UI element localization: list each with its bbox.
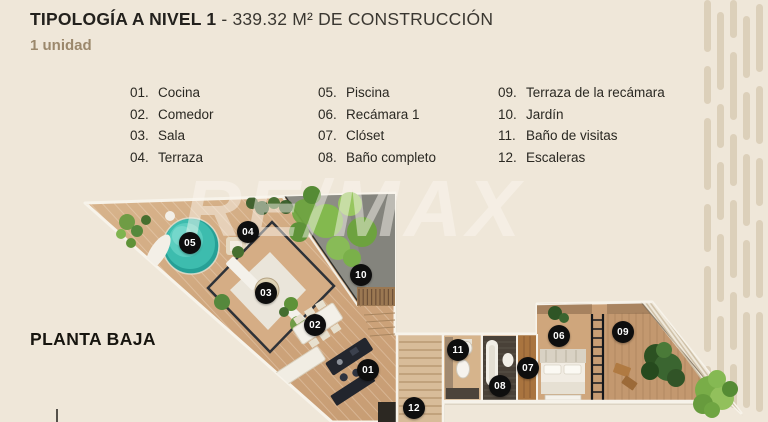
- plan-marker-11-bano-visitas: 11: [447, 339, 469, 361]
- plan-marker-04-terraza: 04: [237, 221, 259, 243]
- plan-marker-12-escaleras: 12: [403, 397, 425, 419]
- legend-item-bano-completo: 08.Baño completo: [318, 151, 436, 166]
- plan-marker-01-cocina: 01: [357, 359, 379, 381]
- plan-level-label: PLANTA BAJA: [30, 329, 156, 350]
- legend-item-cocina: 01.Cocina: [130, 86, 214, 101]
- legend-column-1: 01.Cocina 02.Comedor 03.Sala 04.Terraza: [130, 86, 214, 165]
- construction-area: 339.32 M² DE CONSTRUCCIÓN: [232, 9, 493, 29]
- plan-marker-08-bano: 08: [489, 375, 511, 397]
- legend-item-escaleras: 12.Escaleras: [498, 151, 665, 166]
- plan-marker-02-comedor: 02: [304, 314, 326, 336]
- plan-marker-05-piscina: 05: [179, 232, 201, 254]
- floor-plan-rendering: [0, 0, 768, 422]
- side-table: [165, 211, 175, 221]
- plan-marker-07-closet: 07: [517, 357, 539, 379]
- plan-marker-06-recamara: 06: [548, 325, 570, 347]
- legend-item-comedor: 02.Comedor: [130, 108, 214, 123]
- bedroom: [537, 303, 592, 402]
- page-title: TIPOLOGÍA A NIVEL 1 - 339.32 M² DE CONST…: [30, 9, 493, 30]
- presentation-slide: TIPOLOGÍA A NIVEL 1 - 339.32 M² DE CONST…: [0, 0, 768, 422]
- legend-item-terraza-recamara: 09.Terraza de la recámara: [498, 86, 665, 101]
- plan-marker-10-jardin: 10: [350, 264, 372, 286]
- legend-item-jardin: 10.Jardín: [498, 108, 665, 123]
- bottom-tick-mark: [56, 409, 58, 422]
- legend-item-closet: 07.Clóset: [318, 129, 436, 144]
- unit-count-label: 1 unidad: [30, 37, 92, 54]
- plan-marker-03-sala: 03: [255, 282, 277, 304]
- legend-column-2: 05.Piscina 06.Recámara 1 07.Clóset 08.Ba…: [318, 86, 436, 165]
- plan-marker-09-terraza-recamara: 09: [612, 321, 634, 343]
- legend-item-terraza: 04.Terraza: [130, 151, 214, 166]
- bed: [540, 349, 586, 400]
- legend-item-recamara: 06.Recámara 1: [318, 108, 436, 123]
- legend-item-bano-visitas: 11.Baño de visitas: [498, 129, 665, 144]
- typology-name: TIPOLOGÍA A NIVEL 1: [30, 9, 216, 29]
- legend-item-piscina: 05.Piscina: [318, 86, 436, 101]
- legend-column-3: 09.Terraza de la recámara 10.Jardín 11.B…: [498, 86, 665, 165]
- legend-item-sala: 03.Sala: [130, 129, 214, 144]
